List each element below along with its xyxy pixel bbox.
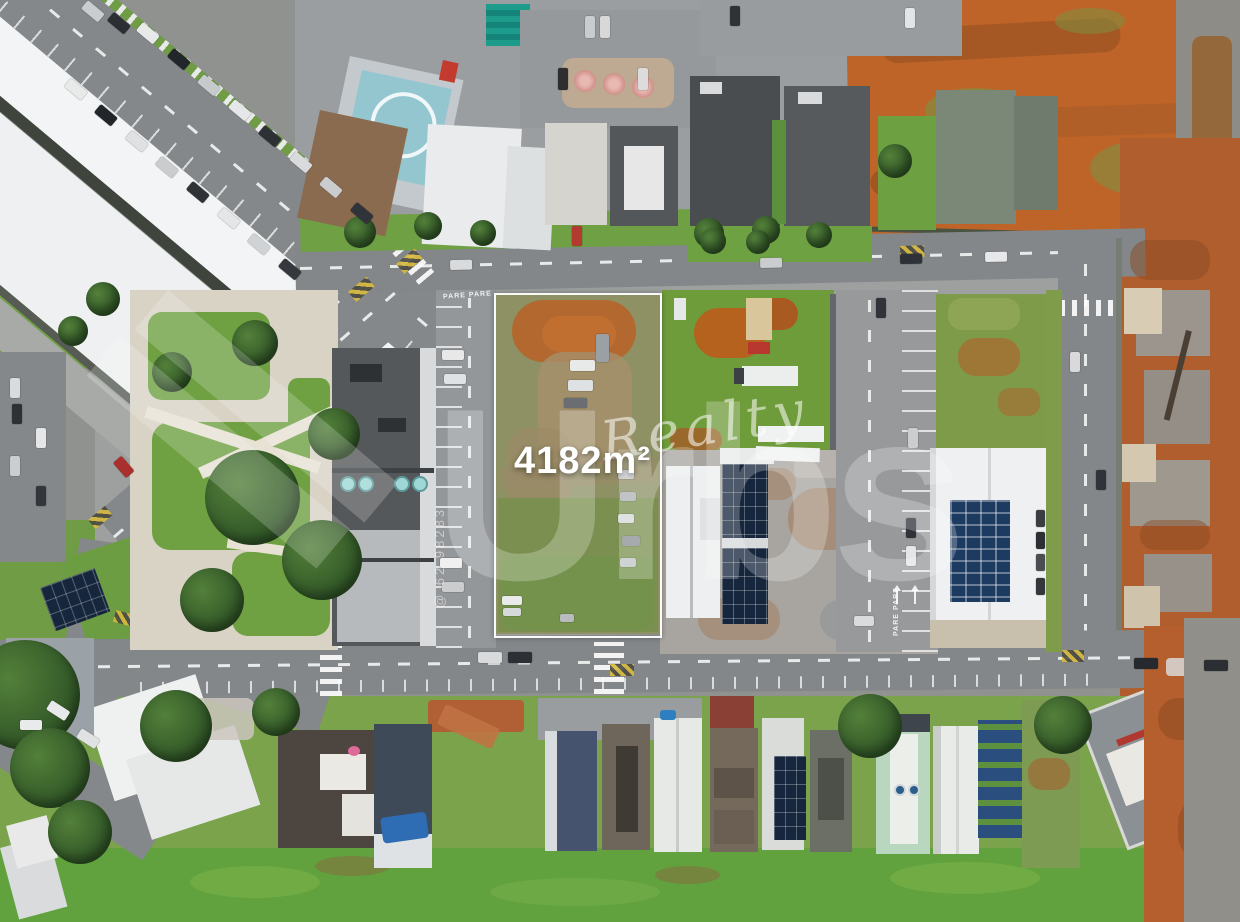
car: [36, 486, 46, 506]
tree: [700, 228, 726, 254]
car: [12, 404, 22, 424]
tree: [344, 216, 376, 248]
townhouse-section: [714, 810, 754, 844]
site-shed: [1122, 444, 1156, 482]
car: [478, 652, 502, 663]
apartment-tower: [690, 76, 780, 230]
car: [10, 378, 20, 398]
site-rust: [1140, 520, 1210, 550]
car: [905, 8, 915, 28]
car: [450, 260, 472, 270]
car: [36, 428, 46, 448]
right-tower: [936, 90, 1016, 224]
green-sliver: [1046, 290, 1062, 652]
car: [558, 68, 568, 90]
pink-umbrella: [574, 70, 596, 92]
red-tile-roof: [710, 696, 754, 728]
wh-grass-dirt: [958, 338, 1020, 376]
tree: [470, 220, 496, 246]
tree: [806, 222, 832, 248]
mid-building-roof: [624, 146, 664, 210]
roof-unit: [378, 418, 406, 432]
mid-building: [545, 123, 607, 225]
curb-hatch: [610, 664, 634, 676]
courtyard-inset: [342, 794, 378, 836]
car: [1036, 532, 1045, 549]
car: [1036, 554, 1045, 571]
pink-parasol: [348, 746, 360, 756]
apartment-roof-unit: [700, 82, 722, 94]
right-tower: [1014, 96, 1058, 210]
site-shed: [1124, 586, 1160, 628]
site-rust: [1130, 240, 1210, 280]
scrub-dirt: [1028, 758, 1070, 790]
tree: [10, 728, 90, 808]
car: [1036, 578, 1045, 595]
car: [1134, 658, 1158, 669]
rooftop-tank: [894, 784, 906, 796]
car: [1204, 660, 1228, 671]
apartment-roof-unit: [798, 92, 822, 104]
car: [1036, 510, 1045, 527]
field-mottle: [890, 862, 1040, 894]
car: [876, 298, 886, 318]
field-mottle: [190, 866, 320, 898]
tree: [1034, 696, 1092, 754]
car: [900, 254, 922, 264]
car: [1096, 470, 1106, 490]
truck-trailer: [746, 298, 772, 340]
tree: [414, 212, 442, 240]
watermark-contact-vertical: @ 62 98283: [432, 448, 447, 608]
car: [638, 68, 648, 90]
car: [600, 16, 610, 38]
townhouse-core: [616, 746, 638, 832]
field-green-patch: [1055, 8, 1125, 34]
white-house-ridge: [956, 726, 959, 854]
courtyard-inset: [320, 754, 366, 790]
tree: [746, 230, 770, 254]
tower-gap-green: [772, 120, 786, 224]
white-house-edge: [933, 726, 941, 854]
curb-hatch: [1062, 650, 1084, 662]
tree: [252, 688, 300, 736]
townhouse-core: [818, 758, 844, 820]
tree: [86, 282, 120, 316]
apartment-tower: [784, 86, 870, 236]
ground-solar-array: [978, 720, 1022, 838]
car: [985, 252, 1007, 262]
wh-grass-light: [948, 298, 1020, 330]
car: [20, 720, 42, 730]
rooftop-pool: [660, 710, 676, 720]
car: [508, 652, 532, 663]
plot-area-label: 4182m²: [514, 440, 651, 483]
field-dirt: [655, 866, 720, 884]
car: [1070, 352, 1080, 372]
van: [674, 298, 686, 320]
townhouse-band: [545, 731, 557, 851]
townhouse-solar: [774, 756, 806, 840]
tree: [140, 690, 212, 762]
roof-ridge: [676, 718, 679, 852]
townhouse-section: [714, 768, 754, 798]
truck-cab: [748, 342, 770, 354]
aerial-photo: Urbs Realty @ 62 98283 4182m² PARE PARE …: [0, 0, 1240, 922]
roof-unit: [350, 364, 382, 382]
tree: [180, 568, 244, 632]
site-shed: [1124, 288, 1162, 334]
tree: [48, 800, 112, 864]
field-mottle: [490, 878, 660, 906]
tree: [58, 316, 88, 346]
car: [760, 258, 782, 268]
tree: [878, 144, 912, 178]
pink-umbrella: [603, 73, 625, 95]
car: [572, 226, 582, 246]
car: [585, 16, 595, 38]
right-crosswalk: [1060, 300, 1114, 316]
rooftop-tank: [908, 784, 920, 796]
car: [10, 456, 20, 476]
tree: [838, 694, 902, 758]
water-tank: [412, 476, 428, 492]
wh-grass-dirt: [998, 388, 1040, 416]
car: [730, 6, 740, 26]
